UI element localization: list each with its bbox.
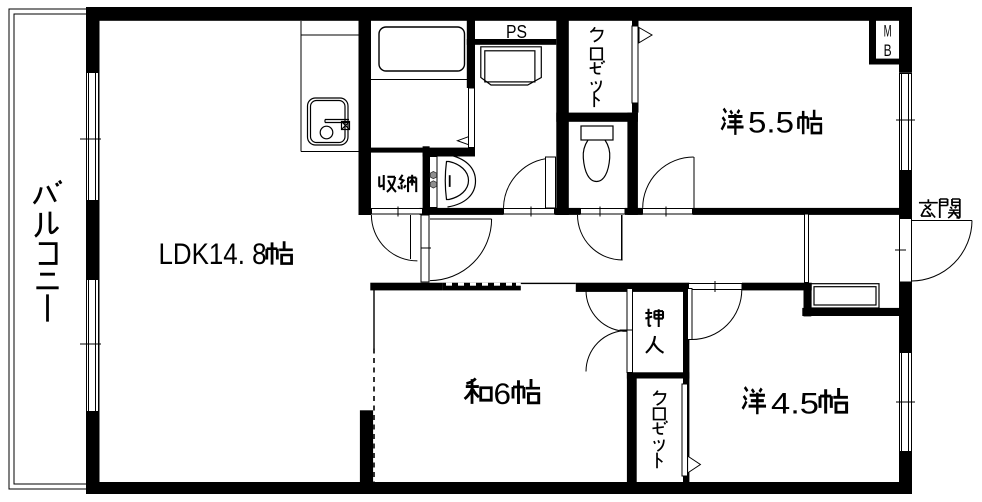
svg-text:4.5: 4.5 xyxy=(771,388,819,421)
svg-text:5.5: 5.5 xyxy=(748,107,794,140)
svg-text:B: B xyxy=(884,41,892,60)
svg-text:PS: PS xyxy=(506,22,527,42)
svg-text:M: M xyxy=(884,22,892,41)
svg-text:LDK14. 8: LDK14. 8 xyxy=(159,238,267,271)
svg-text:6: 6 xyxy=(494,378,512,411)
